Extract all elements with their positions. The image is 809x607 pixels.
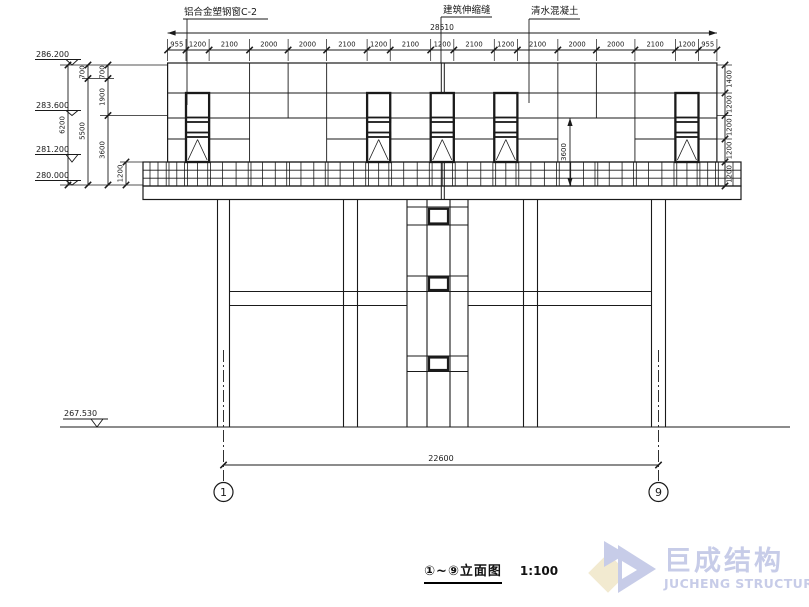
segment-dim-label: 1200 <box>678 41 695 49</box>
jucheng-logo-icon <box>592 537 658 601</box>
dim-label: 3600 <box>99 141 107 159</box>
window-frame <box>186 93 209 162</box>
window-frame <box>367 93 390 162</box>
sash-opening-line <box>369 140 379 161</box>
dim-label: 6200 <box>59 116 67 134</box>
dim-arrow <box>709 30 717 35</box>
drawing-caption: ①~⑨立面图1:100 <box>424 560 558 579</box>
segment-dim-label: 1200 <box>189 41 206 49</box>
sash-opening-line <box>198 140 208 161</box>
sash-opening-line <box>188 140 198 161</box>
segment-dim-label: 955 <box>701 41 714 49</box>
dim-label: 700 <box>79 65 87 78</box>
axis-dim-label: 22600 <box>428 454 453 463</box>
window-c2 <box>675 93 698 162</box>
window-frame <box>431 93 454 162</box>
top-annotations: 铝合金塑钢窗C-2建筑伸缩缝清水混凝土 <box>183 4 580 105</box>
logo-chinese-name: 巨成结构 <box>664 548 809 575</box>
left-dimensions: 62007005500700190036001200286.200283.600… <box>35 50 168 188</box>
concrete-label: 清水混凝土 <box>531 5 579 17</box>
dim-label: 1900 <box>99 88 107 106</box>
axis-number: 9 <box>655 486 662 499</box>
window-transom <box>367 133 390 138</box>
window-c2 <box>367 93 390 162</box>
elevation-drawing: 铝合金塑钢窗C-2建筑伸缩缝清水混凝土285109551200210020002… <box>0 0 809 607</box>
segment-dim-label: 2100 <box>338 41 355 49</box>
window-c2 <box>494 93 517 162</box>
sash-opening-line <box>496 140 506 161</box>
tower-panel <box>429 278 448 291</box>
sash-opening-line <box>687 140 697 161</box>
dim-label: 1200 <box>726 165 734 183</box>
elevation-label: 267.530 <box>64 409 97 418</box>
segment-dim-label: 2000 <box>299 41 316 49</box>
sash-opening-line <box>506 140 516 161</box>
bottom-annotations: 267.5302260019 <box>63 350 668 502</box>
logo-english-name: JUCHENG STRUCTURE <box>664 578 809 591</box>
dim-label: 700 <box>99 65 107 78</box>
dim-label: 1400 <box>726 70 734 88</box>
window-c2 <box>186 93 209 162</box>
dim-label: 5500 <box>79 122 87 140</box>
segment-dim-label: 955 <box>170 41 183 49</box>
window-frame <box>494 93 517 162</box>
window-transom <box>494 118 517 123</box>
top-dimension-chain: 2851095512002100200020002100120021001200… <box>164 23 720 61</box>
elevation-label: 281.200 <box>36 145 69 154</box>
elevation-label: 280.000 <box>36 171 69 180</box>
segment-dim-label: 1200 <box>370 41 387 49</box>
substructure <box>60 200 790 428</box>
segment-dim-label: 2100 <box>465 41 482 49</box>
caption-scale: 1:100 <box>520 564 558 578</box>
dim-label: 1200 <box>726 118 734 136</box>
elevation-drawing-sheet: 铝合金塑钢窗C-2建筑伸缩缝清水混凝土285109551200210020002… <box>0 0 809 607</box>
segment-dim-label: 2100 <box>529 41 546 49</box>
inner-dim-label: 3600 <box>560 143 568 161</box>
expansion-joint-label: 建筑伸缩缝 <box>443 4 491 16</box>
window-c2 <box>431 93 454 162</box>
tower-panel <box>429 358 448 371</box>
segment-dim-label: 2000 <box>260 41 277 49</box>
segment-dim-label: 1200 <box>497 41 514 49</box>
overall-dim-label: 28510 <box>430 23 454 32</box>
segment-dim-label: 2000 <box>568 41 585 49</box>
axis-number: 1 <box>220 486 227 499</box>
window-transom <box>431 133 454 138</box>
window-transom <box>367 118 390 123</box>
window-transom <box>675 133 698 138</box>
window-transom <box>186 118 209 123</box>
sash-opening-line <box>442 140 452 161</box>
window-transom <box>494 133 517 138</box>
window-transom <box>431 118 454 123</box>
sash-opening-line <box>379 140 389 161</box>
dim-label: 1200 <box>726 95 734 113</box>
segment-dim-label: 1200 <box>434 41 451 49</box>
window-frame <box>675 93 698 162</box>
elevation-label: 286.200 <box>36 50 69 59</box>
segment-dim-label: 2000 <box>607 41 624 49</box>
dim-label: 1200 <box>117 165 125 183</box>
elevation-triangle <box>91 419 103 427</box>
dim-arrow <box>168 30 176 35</box>
dim-arrow <box>567 178 572 186</box>
window-transom <box>186 133 209 138</box>
dim-arrow <box>567 118 572 126</box>
sash-opening-line <box>677 140 687 161</box>
segment-dim-label: 2100 <box>402 41 419 49</box>
window-transom <box>675 118 698 123</box>
window-type-label: 铝合金塑钢窗C-2 <box>184 6 257 18</box>
sash-opening-line <box>433 140 443 161</box>
logo-text: 巨成结构 JUCHENG STRUCTURE <box>664 548 809 591</box>
tower-panel <box>429 209 448 224</box>
caption-title: ①~⑨立面图 <box>424 564 502 584</box>
jucheng-logo: 巨成结构 JUCHENG STRUCTURE <box>592 536 807 602</box>
segment-dim-label: 2100 <box>646 41 663 49</box>
dim-label: 1200 <box>726 142 734 160</box>
elevation-label: 283.600 <box>36 101 69 110</box>
segment-dim-label: 2100 <box>221 41 238 49</box>
main-beam <box>143 186 741 200</box>
walkway-truss <box>143 162 741 200</box>
